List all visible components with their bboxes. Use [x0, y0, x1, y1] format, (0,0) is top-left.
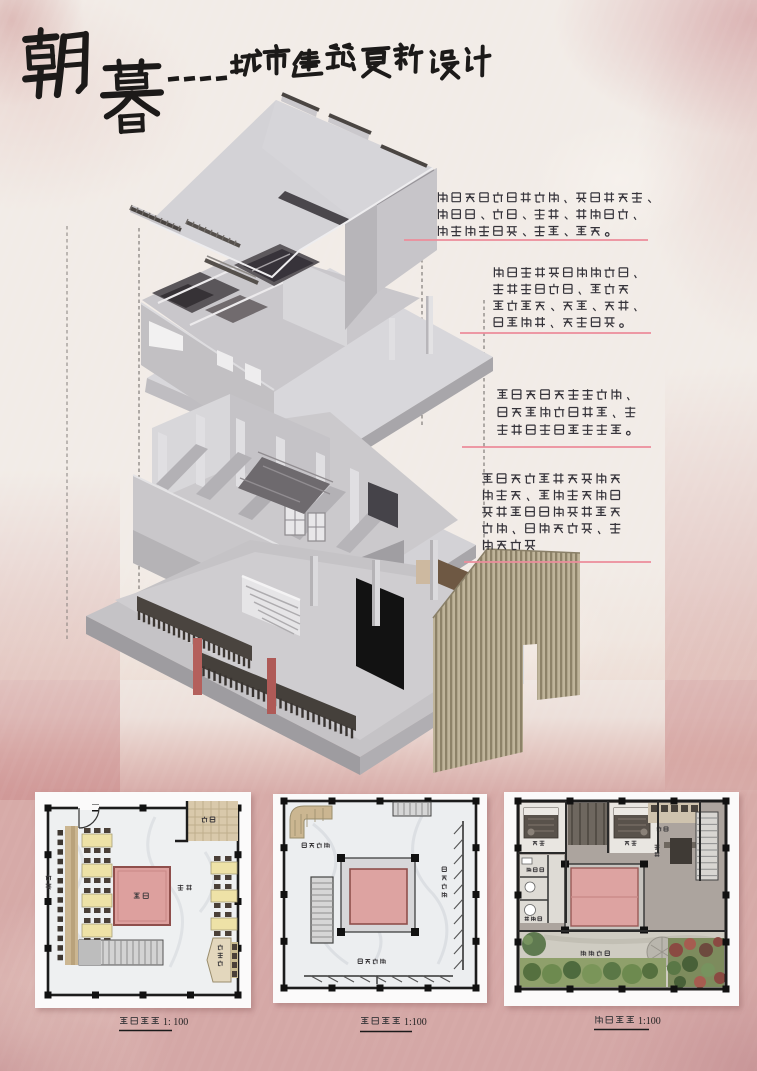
- svg-text:1: 100: 1: 100: [163, 1017, 188, 1028]
- svg-text:1:100: 1:100: [638, 1016, 661, 1027]
- svg-text:1:100: 1:100: [404, 1017, 427, 1028]
